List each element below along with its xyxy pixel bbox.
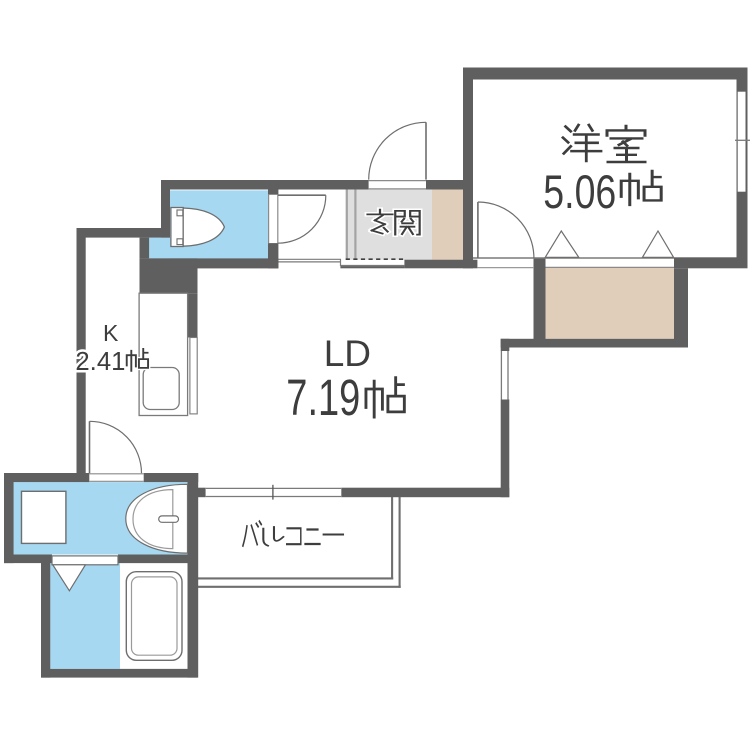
svg-text:K: K bbox=[103, 320, 119, 346]
svg-text:5.06: 5.06 bbox=[543, 165, 616, 218]
svg-text:LD: LD bbox=[324, 333, 371, 374]
svg-text:2.41: 2.41 bbox=[75, 346, 125, 376]
svg-text:7.19: 7.19 bbox=[286, 369, 360, 426]
